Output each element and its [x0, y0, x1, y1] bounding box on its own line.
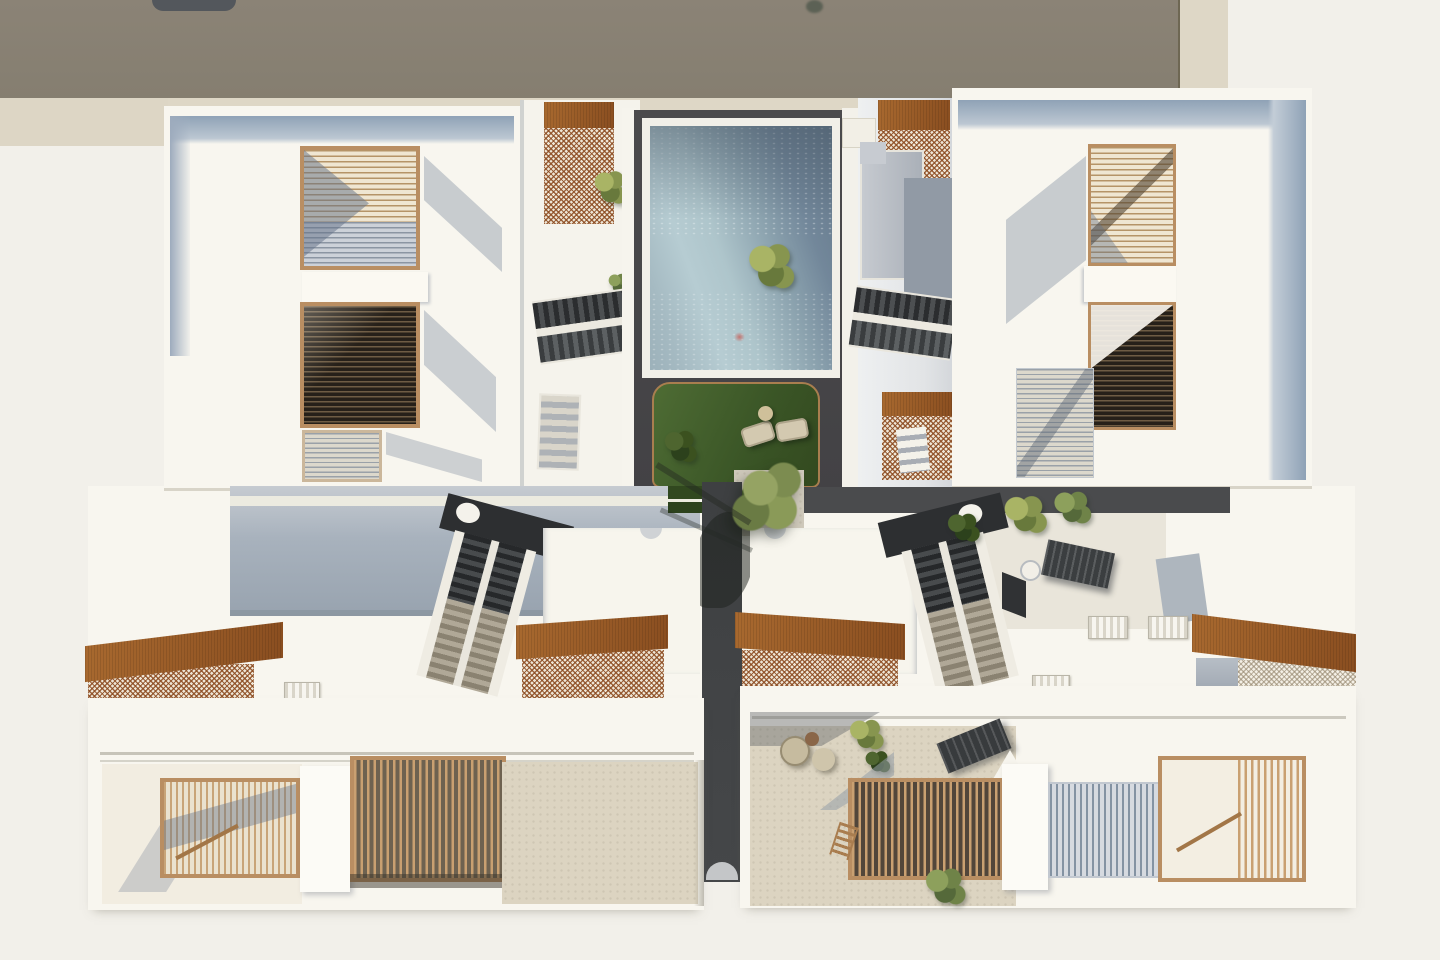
terrace-east-plant-3	[946, 512, 982, 544]
service-stair-west	[537, 393, 582, 470]
lawn-shrub	[664, 428, 698, 466]
sw-east-wall-shadow	[694, 760, 704, 906]
timber-louver-panel-e	[1088, 302, 1176, 430]
balcony-slab-gap-d	[1084, 266, 1176, 302]
gray-slat-railing-se	[1048, 782, 1160, 878]
east-gray-volume-2	[904, 178, 952, 306]
terrace-east-plant-2	[1052, 490, 1094, 526]
timber-louver-panel-a	[300, 146, 420, 270]
pouf-round	[812, 748, 835, 771]
corten-pergola-east-top	[878, 100, 950, 130]
lounge-chair-2	[775, 417, 810, 442]
architectural-render-scene	[0, 0, 1440, 960]
se-plant-1	[848, 718, 886, 752]
sw-center-block	[300, 766, 350, 892]
pool-stair-east	[848, 283, 961, 367]
pool-ripples-bottom	[650, 292, 832, 370]
east-zigzag-stair	[896, 427, 930, 474]
pergola-center-west-mesh	[522, 650, 664, 702]
bistro-table	[1020, 560, 1041, 581]
corten-pergola-east-low	[882, 392, 954, 418]
timber-louver-panel-c	[302, 430, 382, 482]
louver-e-sunlit-corner	[1091, 305, 1173, 427]
louver-b-sun-glint	[304, 306, 416, 424]
pool-red-float	[734, 332, 745, 342]
louver-f-diag-shadow	[1017, 369, 1093, 477]
building-nw-parapet-left	[170, 116, 190, 356]
timber-frame-brace	[1176, 812, 1242, 852]
side-table-round	[758, 406, 773, 421]
terrace-east-plant-1	[1002, 494, 1050, 536]
timber-louver-panel-d	[1088, 144, 1176, 266]
sw-railing-east-shadow	[350, 874, 502, 888]
sw-ledge-line-1	[100, 752, 694, 755]
pergola-slat-panel-se	[848, 778, 1004, 880]
skylight-5	[1088, 616, 1128, 639]
rooftop-vent-large	[152, 0, 236, 11]
timber-frame-railing-slats	[1238, 760, 1302, 878]
timber-railing-sw-west	[160, 778, 300, 878]
pool-water	[650, 126, 832, 370]
se-center-block	[1002, 764, 1048, 890]
pool-dark-sheen	[650, 126, 832, 219]
neighbor-building-roof	[0, 0, 1178, 102]
timber-frame-railing-se	[1158, 756, 1306, 882]
timber-railing-sw-east	[350, 756, 506, 882]
ne-roof-box-2	[860, 142, 886, 164]
sw-terrace-east-floor	[502, 762, 698, 904]
corten-pergola-west-top	[544, 102, 614, 130]
ground-sand-left	[0, 98, 168, 146]
timber-louver-panel-b	[300, 302, 420, 428]
pool-edge-plant	[748, 240, 796, 294]
balcony-slab-gap-a	[302, 272, 428, 302]
walkway-end-plant	[924, 866, 968, 908]
rooftop-vent-small	[806, 0, 823, 13]
wood-side-table	[805, 732, 819, 746]
skylight-6	[1148, 616, 1188, 639]
courtyard-tree	[722, 448, 818, 548]
lounge-chair-1	[740, 420, 777, 449]
timber-louver-panel-f	[1016, 368, 1094, 478]
building-ne-parapet-right	[1268, 100, 1306, 480]
building-nw-parapet-top	[170, 116, 514, 144]
building-ne-parapet-top	[958, 100, 1306, 130]
